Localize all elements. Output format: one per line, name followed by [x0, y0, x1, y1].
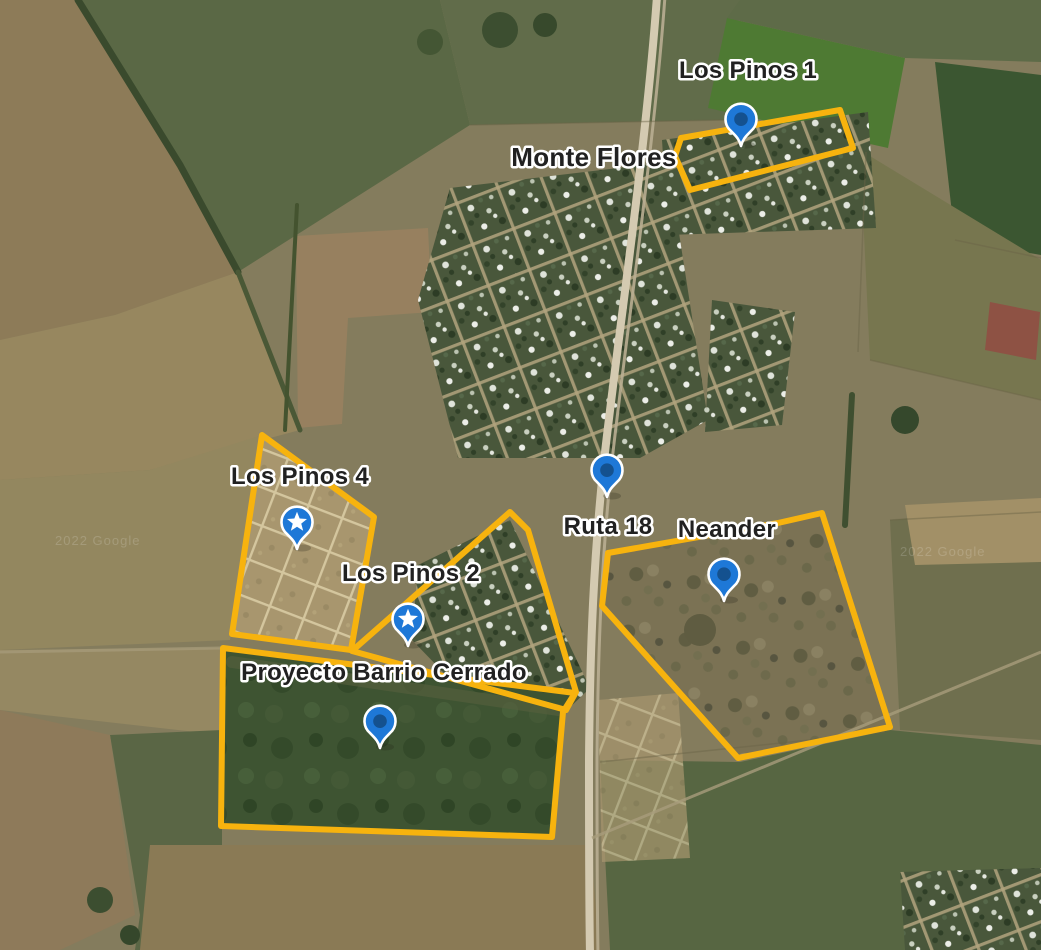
label-proyecto-barrio-cerrado: Proyecto Barrio Cerrado [241, 659, 527, 686]
label-los-pinos-1: Los Pinos 1 [679, 57, 817, 84]
monte-flores-town-area [418, 162, 708, 458]
tree-cluster [482, 12, 518, 48]
label-monte-flores: Monte Flores [511, 142, 676, 172]
label-los-pinos-4: Los Pinos 4 [231, 463, 369, 490]
label-los-pinos-2: Los Pinos 2 [342, 560, 480, 587]
tree-cluster [891, 406, 919, 434]
label-neander: Neander [678, 516, 776, 543]
tree-cluster [417, 29, 443, 55]
label-ruta-18: Ruta 18 [564, 513, 653, 540]
lots-area [598, 693, 690, 862]
imagery-watermark: 2022 Google [55, 533, 140, 548]
field-patch [985, 302, 1040, 360]
tree-cluster [533, 13, 557, 37]
town-area [900, 868, 1041, 950]
town-area [705, 300, 795, 432]
tree-cluster [120, 925, 140, 945]
scrub-cluster [684, 614, 716, 646]
satellite-map: 2022 Google 2022 Google Los Pinos 1 [0, 0, 1041, 950]
tree-cluster [87, 887, 113, 913]
imagery-watermark: 2022 Google [900, 544, 985, 559]
field-patch [140, 845, 600, 950]
